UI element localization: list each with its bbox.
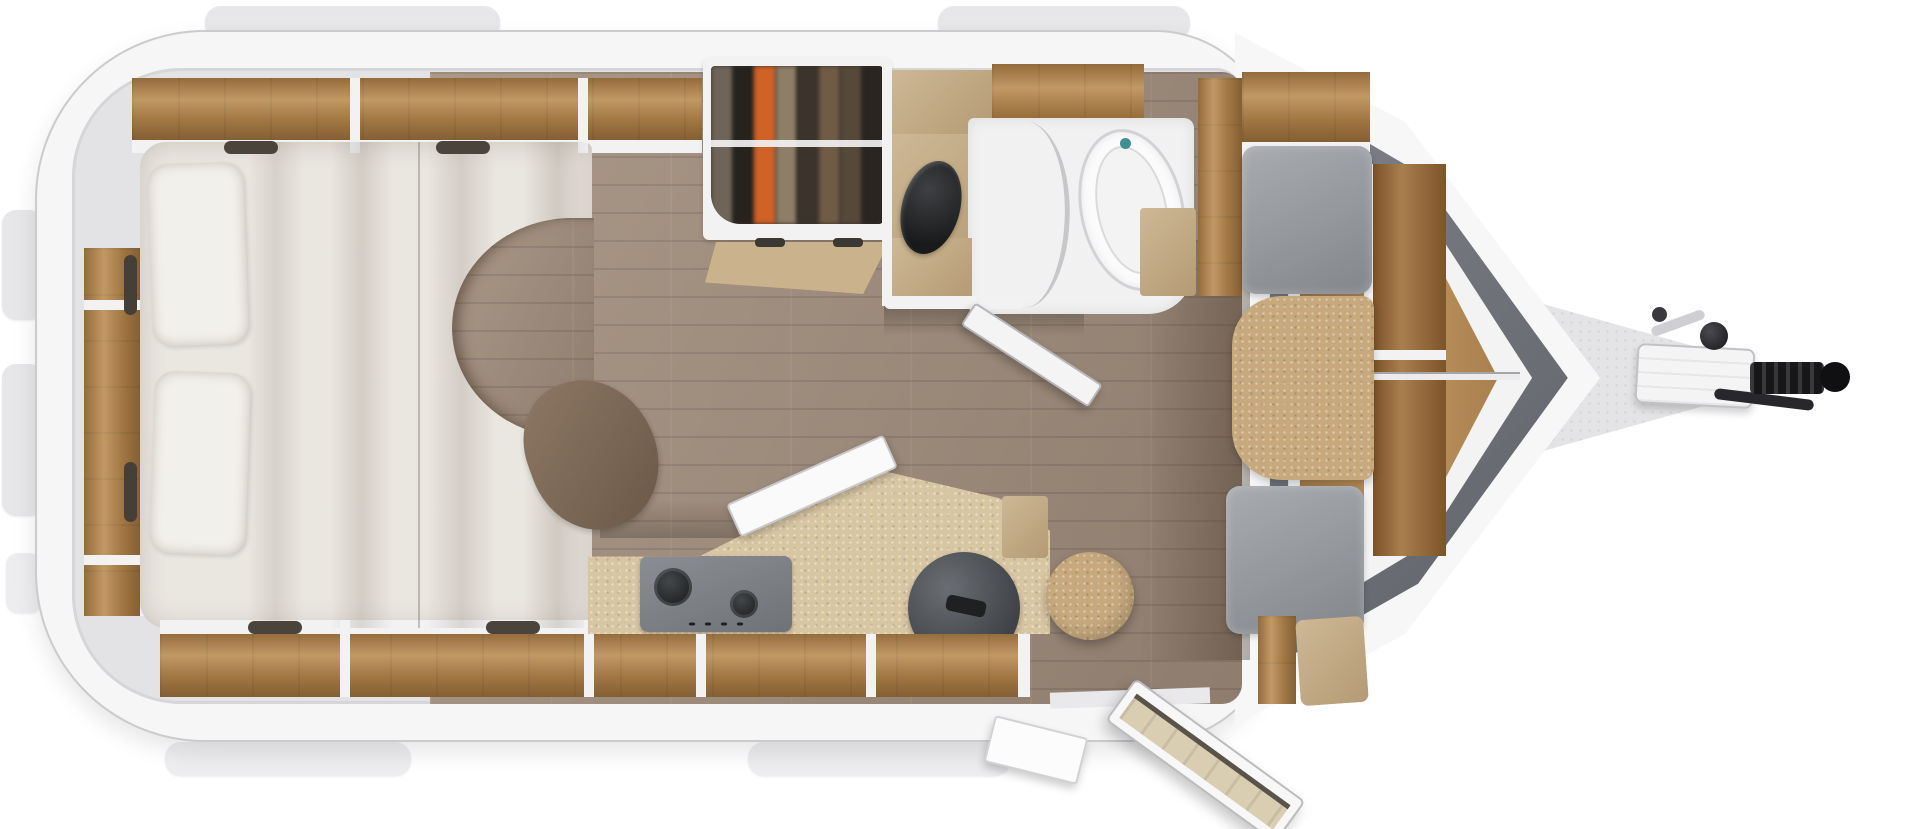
door-side-cushion [1295,616,1369,707]
dinette-bench-front [1242,146,1372,294]
wardrobe-rail [711,140,883,147]
caravan-floorplan [0,0,1920,829]
counter-end-cabinet [1002,496,1048,558]
hob-burner [654,568,692,606]
washroom-cabinet [1140,208,1196,296]
locker-handle [436,141,490,154]
locker-divider [340,620,350,697]
pillow [147,161,249,346]
bed-seam [418,142,420,628]
front-shelf [1372,164,1446,556]
partition-wall [1198,78,1242,296]
stool [1046,552,1134,640]
rear-shelf-divider [84,555,140,565]
dinette-table [1232,296,1374,480]
cabinet-handle [124,462,137,522]
hob-burner [730,590,758,618]
washroom-wall [882,58,892,306]
hob-knobs [684,620,748,628]
overhead-locker-front [1242,72,1370,142]
hinge [755,238,785,247]
handbrake-knob [1700,322,1728,350]
washroom-wall [884,296,1024,309]
locker-handle [248,621,302,634]
hitch-coupler-cap [1820,362,1850,392]
nose-center-divider [1370,372,1520,380]
hinge [833,238,863,247]
bumper-rail-left [165,742,411,776]
front-shelf-divider [1372,350,1446,360]
pillow [149,370,251,555]
jockey-wheel-knob [1652,307,1667,322]
locker-handle [486,621,540,634]
door-side-cabinet [1258,616,1296,704]
locker-handle [224,141,278,154]
cabinet-handle [124,255,137,315]
bumper-rail-right [748,742,1010,776]
hitch-coupler-head [1750,362,1824,394]
overhead-lockers-top [132,78,702,140]
faucet-accent [1120,138,1131,149]
dinette-bench-rear [1226,486,1364,634]
